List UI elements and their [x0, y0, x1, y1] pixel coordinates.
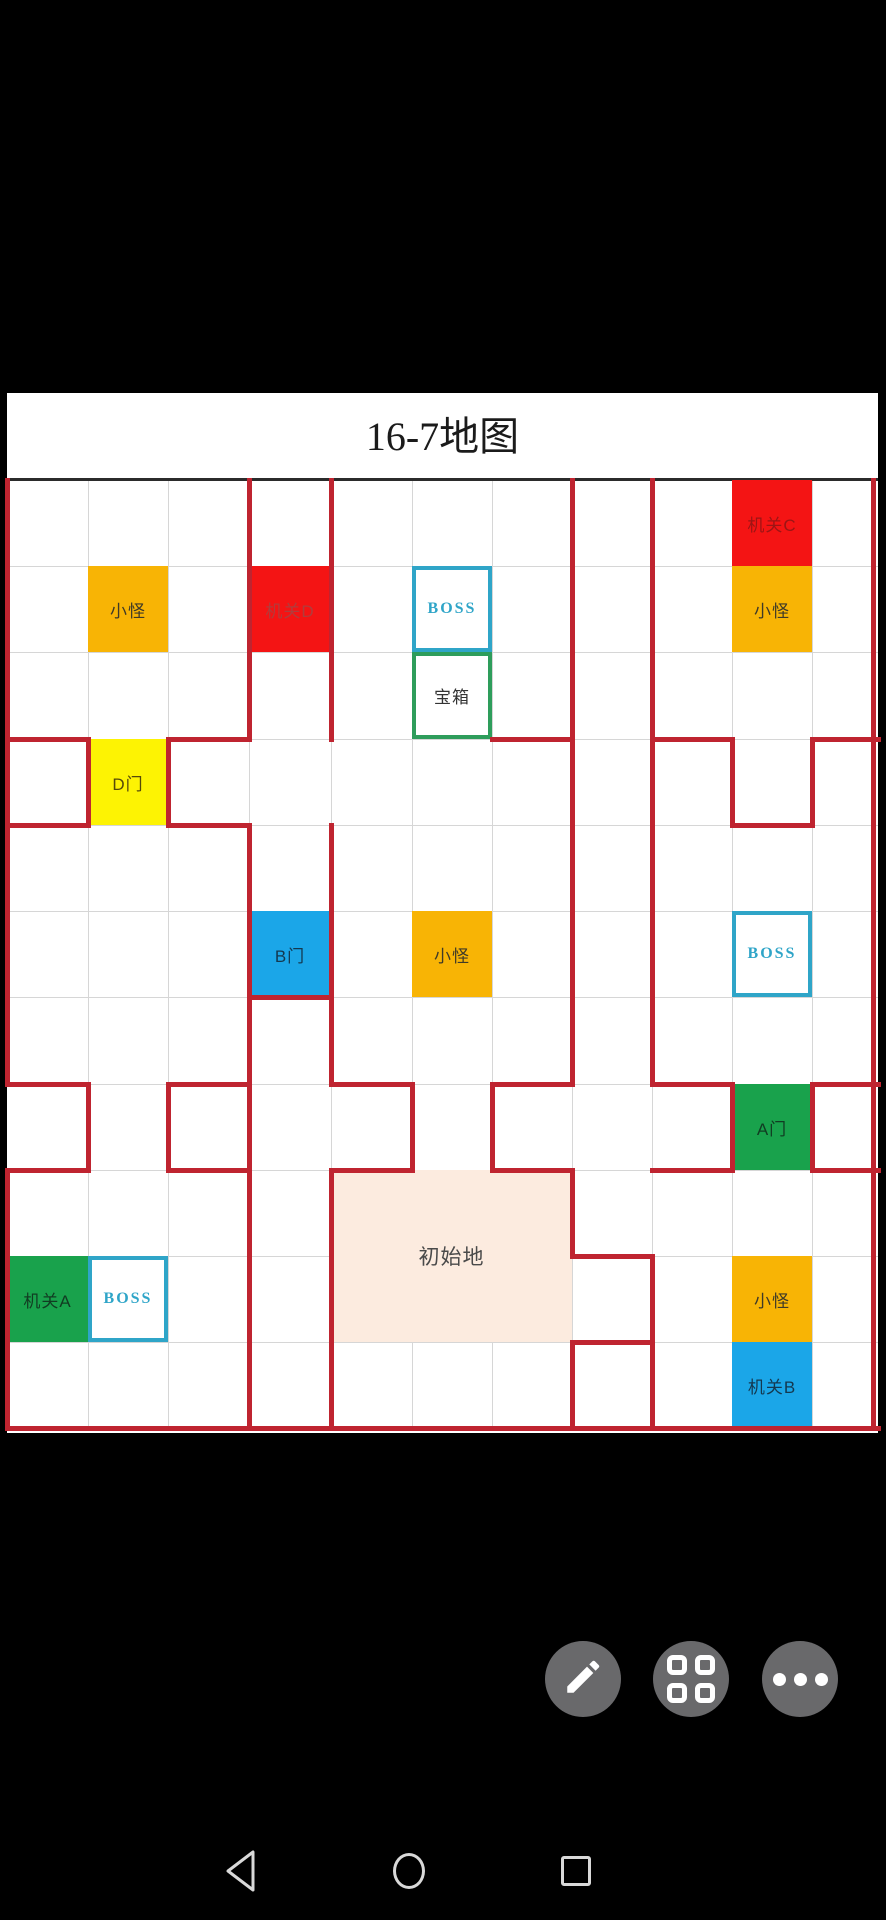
phone-screen: 16-7地图 机关C小怪小怪机关DBOSS宝箱D门B门小怪BOSSA门初始地机关…: [0, 0, 886, 1920]
ellipsis-icon: [773, 1673, 828, 1686]
red-path-segment: [166, 737, 252, 742]
grid-line-horizontal: [7, 997, 878, 998]
red-path-segment: [5, 823, 91, 828]
cell-trap-b: 机关B: [732, 1342, 812, 1428]
red-path-segment: [166, 737, 171, 828]
red-path-segment: [650, 1082, 735, 1087]
red-path-segment: [810, 1168, 881, 1173]
red-path-segment: [247, 995, 334, 1000]
red-path-segment: [570, 1340, 575, 1431]
red-path-segment: [810, 737, 815, 828]
apps-button[interactable]: [653, 1641, 729, 1717]
red-path-segment: [86, 737, 91, 828]
map-image-panel: 16-7地图 机关C小怪小怪机关DBOSS宝箱D门B门小怪BOSSA门初始地机关…: [7, 393, 878, 1433]
cell-treasure-chest: 宝箱: [412, 652, 492, 739]
cell-boss-right: BOSS: [732, 911, 812, 997]
cell-monster-bottom-right: 小怪: [732, 1256, 812, 1342]
apps-grid-icon: [667, 1655, 715, 1703]
red-path-segment: [329, 1168, 415, 1173]
cell-monster-middle: 小怪: [412, 911, 492, 997]
red-path-segment: [329, 823, 334, 1087]
red-path-segment: [5, 737, 91, 742]
red-path-segment: [810, 1082, 881, 1087]
cell-start-area: 初始地: [331, 1170, 572, 1342]
red-path-segment: [166, 1082, 171, 1173]
back-triangle-icon: [222, 1847, 262, 1895]
cell-door-a: A门: [732, 1084, 812, 1170]
red-path-segment: [247, 478, 252, 742]
cell-door-d: D门: [88, 739, 168, 825]
red-path-segment: [650, 478, 655, 1087]
nav-recents[interactable]: [561, 1856, 591, 1886]
red-path-segment: [5, 1168, 91, 1173]
red-path-segment: [166, 823, 252, 828]
red-path-segment: [490, 1082, 575, 1087]
grid-line-vertical: [168, 480, 169, 1428]
red-path-segment: [5, 478, 10, 1087]
cell-monster-top-right: 小怪: [732, 566, 812, 652]
cell-trap-a: 机关A: [7, 1256, 88, 1342]
cell-door-b: B门: [249, 911, 331, 997]
red-path-segment: [166, 1168, 252, 1173]
red-path-segment: [247, 823, 252, 1431]
red-path-segment: [490, 1168, 575, 1173]
pencil-icon: [562, 1656, 604, 1703]
red-path-segment: [490, 737, 575, 742]
red-path-segment: [329, 478, 334, 742]
cell-boss-top: BOSS: [412, 566, 492, 652]
red-path-segment: [329, 1082, 415, 1087]
red-path-segment: [730, 823, 815, 828]
nav-back[interactable]: [222, 1847, 262, 1900]
red-path-segment: [490, 1082, 495, 1173]
grid-line-vertical: [812, 480, 813, 1428]
red-path-segment: [410, 1082, 415, 1173]
cell-trap-c: 机关C: [732, 480, 812, 566]
red-path-segment: [5, 1426, 881, 1431]
map-title: 16-7地图: [7, 393, 878, 480]
red-path-segment: [5, 1082, 91, 1087]
red-path-segment: [86, 1082, 91, 1173]
cell-boss-bottom-left: BOSS: [88, 1256, 168, 1342]
edit-button[interactable]: [545, 1641, 621, 1717]
red-path-segment: [810, 1082, 815, 1173]
red-path-segment: [570, 1168, 575, 1259]
red-path-segment: [650, 737, 735, 742]
red-path-segment: [650, 1168, 735, 1173]
red-path-segment: [5, 1168, 10, 1431]
more-button[interactable]: [762, 1641, 838, 1717]
red-path-segment: [730, 737, 735, 828]
red-path-segment: [730, 1082, 735, 1173]
red-path-segment: [570, 1340, 655, 1345]
cell-trap-d: 机关D: [249, 566, 331, 652]
red-path-segment: [871, 478, 876, 1431]
nav-home[interactable]: [393, 1853, 425, 1889]
red-path-segment: [810, 737, 881, 742]
red-path-segment: [570, 1254, 655, 1259]
red-path-segment: [570, 478, 575, 1087]
red-path-segment: [329, 1168, 334, 1431]
red-path-segment: [166, 1082, 252, 1087]
cell-monster-top-left: 小怪: [88, 566, 168, 652]
